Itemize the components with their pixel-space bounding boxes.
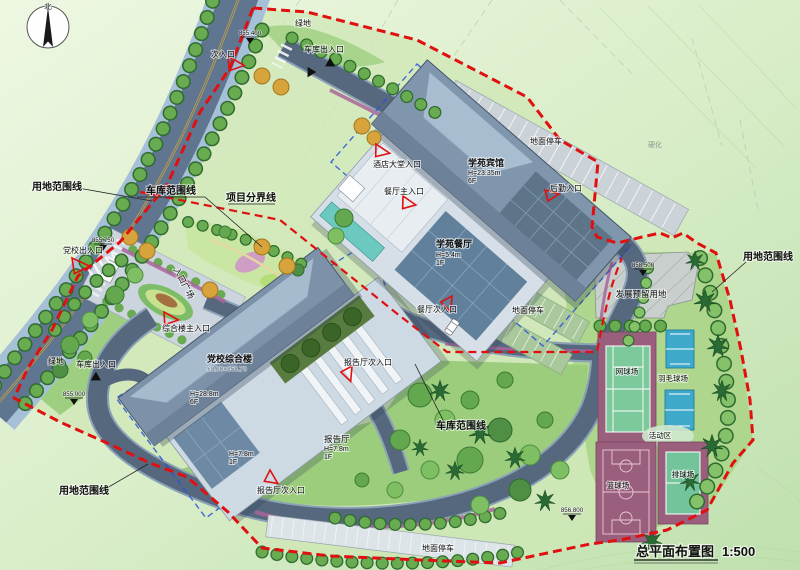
- svg-text:6F: 6F: [190, 399, 198, 406]
- svg-text:856.800: 856.800: [561, 507, 584, 514]
- label-complex-main-entrance: 综合楼主入口: [162, 323, 210, 333]
- label-reserved-land: 发展预留用地: [615, 289, 667, 299]
- label-site-boundary-e: 用地范围线: [742, 250, 793, 263]
- label-tennis: 网球场: [616, 366, 639, 376]
- title-scale: 1:500: [722, 544, 755, 559]
- svg-text:H=5.4m: H=5.4m: [436, 252, 461, 259]
- label-basketball: 篮球场: [607, 480, 630, 490]
- svg-text:学苑宾馆: 学苑宾馆: [468, 157, 504, 168]
- svg-text:党校综合楼: 党校综合楼: [207, 353, 252, 364]
- label-hardened: 硬化: [648, 140, 662, 149]
- svg-text:1F: 1F: [229, 459, 237, 466]
- label-hall-side-entrance-east: 报告厅次入口: [344, 357, 392, 367]
- label-garage-entrance-sw: 车库出入口: [76, 359, 116, 369]
- svg-text:855.000: 855.000: [63, 391, 86, 398]
- label-site-boundary-nw: 用地范围线: [31, 180, 82, 193]
- svg-text:1F: 1F: [324, 454, 332, 461]
- site-plan-page: 855.400 855.750 858.500 856.800 855.000 …: [0, 0, 800, 570]
- label-volleyball: 排球场: [672, 469, 695, 479]
- label-green-top: 绿地: [295, 18, 311, 28]
- label-hotel-lobby-entrance: 酒店大堂入口: [373, 159, 421, 169]
- label-garage-entrance-top: 车库出入口: [304, 44, 344, 54]
- title-text: 总平面布置图: [636, 544, 714, 559]
- svg-text:H=23.35m: H=23.35m: [468, 170, 501, 177]
- svg-text:H=28.8m: H=28.8m: [190, 391, 219, 398]
- label-garage-boundary-1: 车库范围线: [146, 184, 196, 197]
- svg-text:6F: 6F: [468, 178, 476, 185]
- label-project-divider: 项目分界线: [226, 191, 276, 204]
- svg-text:855.750: 855.750: [92, 237, 115, 244]
- label-hall-side-entrance-south: 报告厅次入口: [257, 485, 305, 495]
- svg-text:858.500: 858.500: [632, 262, 655, 269]
- svg-text:H=7.8m: H=7.8m: [229, 451, 254, 458]
- svg-text:±0.00=858.70: ±0.00=858.70: [207, 366, 247, 373]
- label-logistics-entrance: 后勤入口: [550, 183, 582, 193]
- label-activity: 活动区: [649, 430, 672, 440]
- svg-text:1F: 1F: [436, 260, 444, 267]
- svg-text:报告厅: 报告厅: [324, 434, 350, 444]
- label-restaurant-main-entrance: 餐厅主入口: [384, 186, 424, 196]
- label-garage-boundary-2: 车库范围线: [436, 419, 486, 432]
- site-plan-drawing: 855.400 855.750 858.500 856.800 855.000 …: [0, 0, 800, 570]
- svg-text:H=7.8m: H=7.8m: [324, 446, 349, 453]
- label-site-boundary-sw: 用地范围线: [58, 484, 109, 497]
- label-parking-top: 地面停车: [530, 136, 562, 146]
- label-green-sw: 绿地: [48, 356, 64, 366]
- label-parking-bottom: 地面停车: [422, 543, 454, 553]
- label-secondary-entrance: 次入口: [211, 49, 235, 59]
- label-party-school-entrance: 党校出入口: [63, 245, 103, 255]
- label-restaurant-side-entrance: 餐厅次入口: [417, 304, 457, 314]
- label-badminton: 羽毛球场: [658, 373, 688, 383]
- svg-text:学苑餐厅: 学苑餐厅: [436, 238, 472, 249]
- svg-text:855.400: 855.400: [239, 30, 262, 37]
- label-parking-mid: 地面停车: [512, 305, 544, 315]
